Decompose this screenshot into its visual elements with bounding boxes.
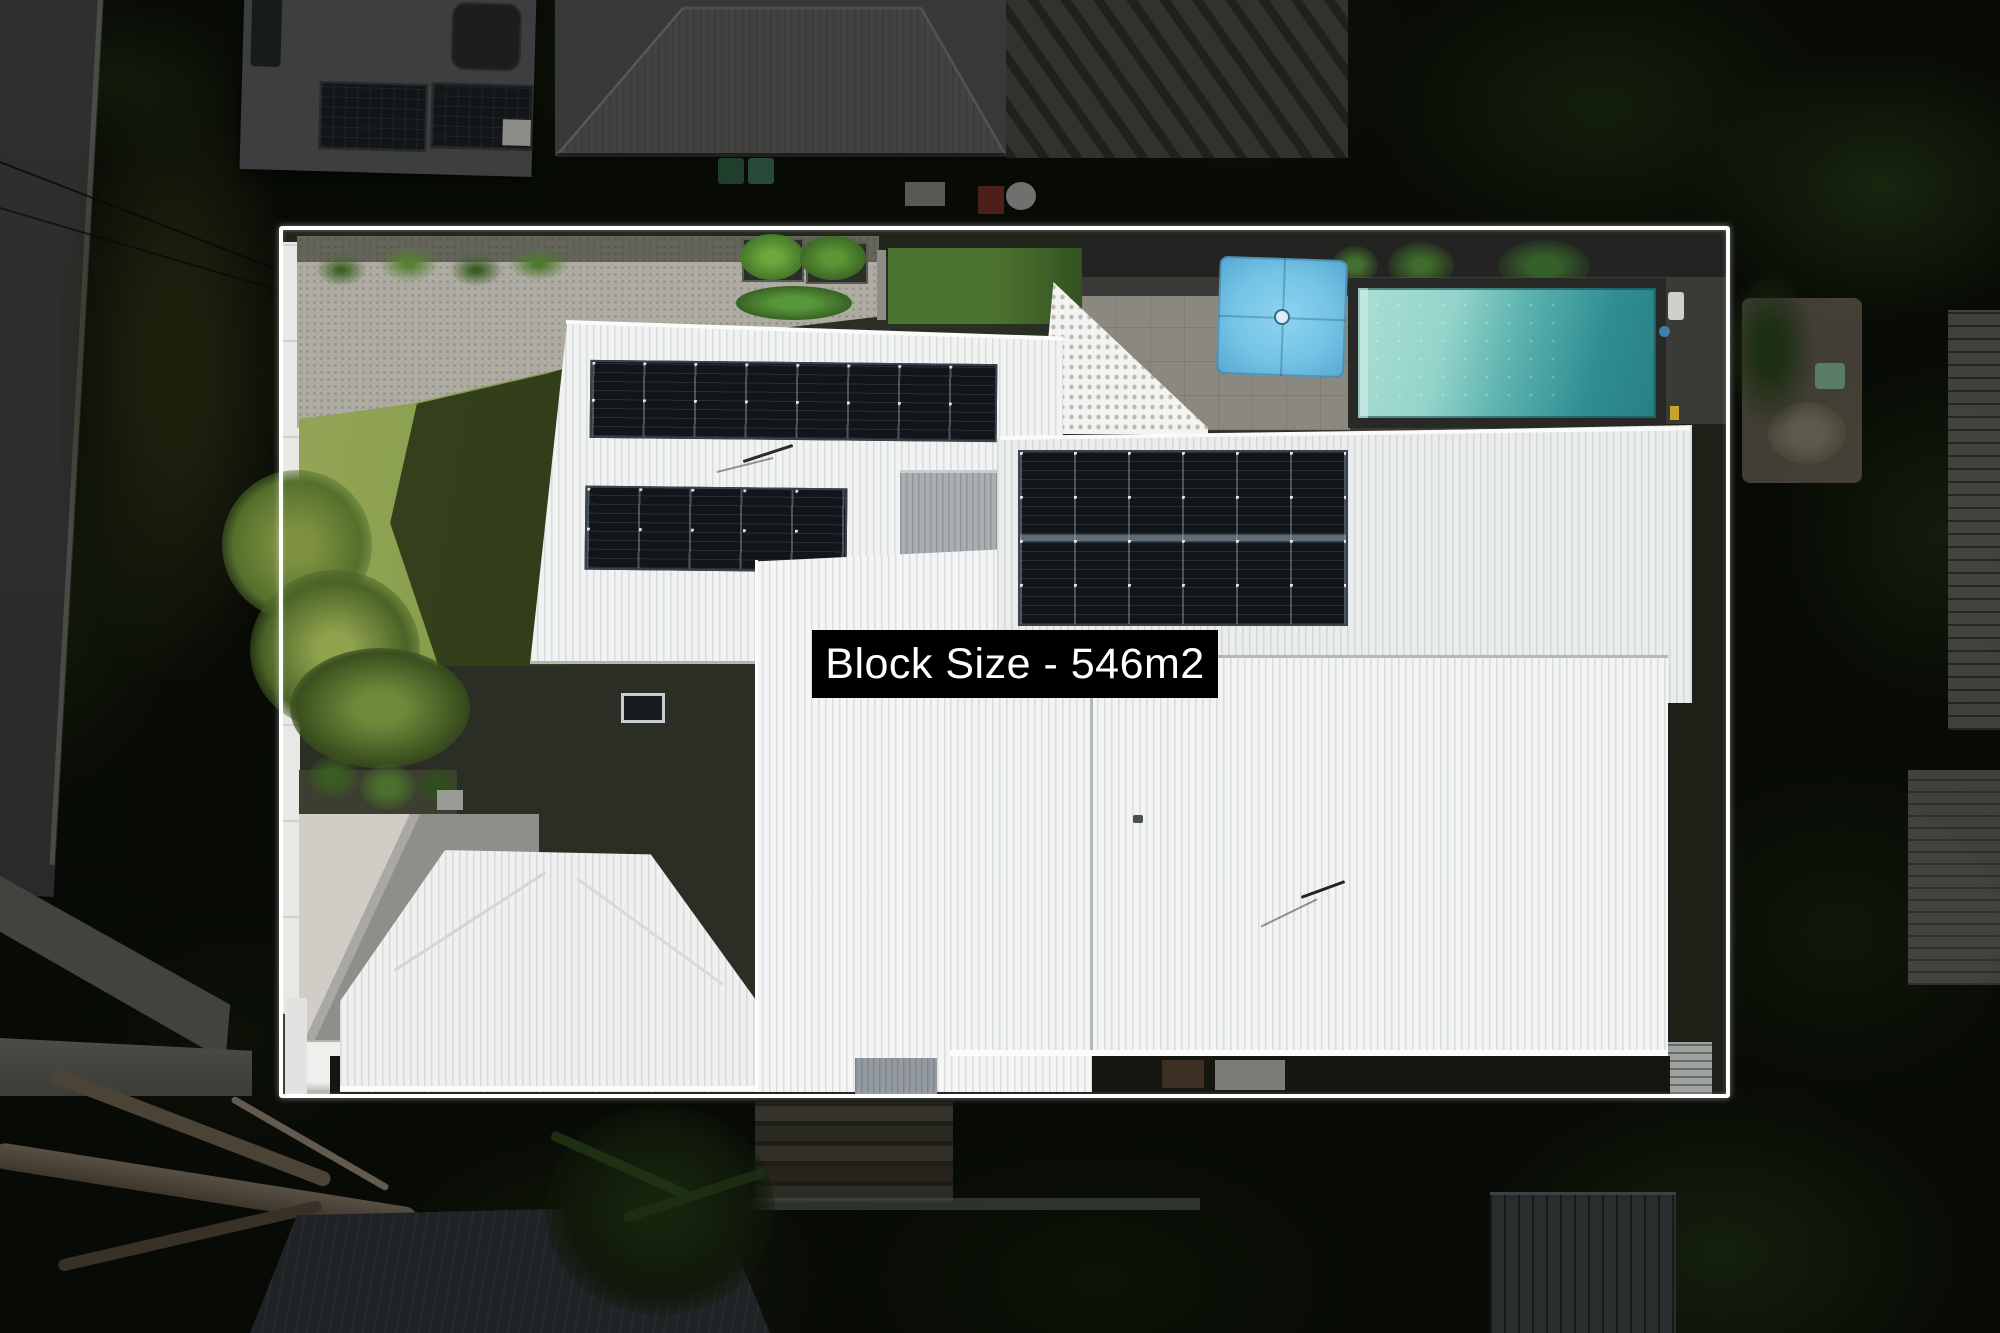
block-size-label-text: Block Size - 546m2 [825,640,1204,689]
exterior-dim-left [0,226,279,1098]
exterior-dim-top [0,0,2000,226]
block-size-label: Block Size - 546m2 [812,630,1218,698]
aerial-photo-stage: Block Size - 546m2 [0,0,2000,1333]
exterior-dim-right [1730,226,2000,1098]
exterior-dim-bottom [0,1098,2000,1333]
